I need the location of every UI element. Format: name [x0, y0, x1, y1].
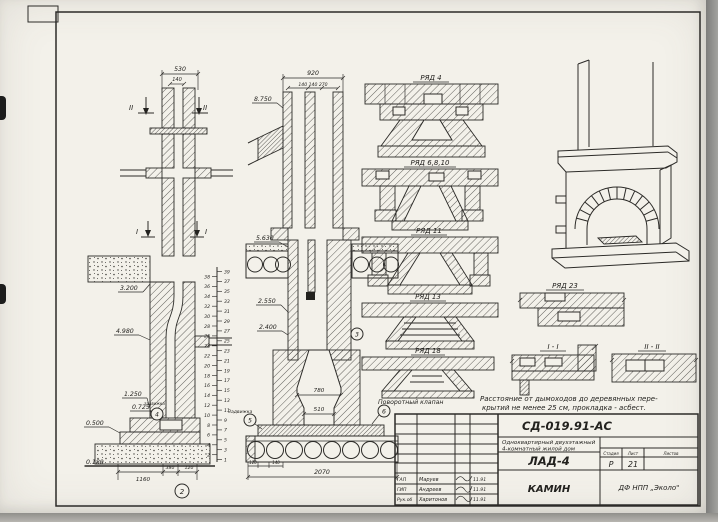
label-povorotny-klapan: Поворотный клапан — [378, 399, 443, 406]
course-number: 32 — [204, 304, 210, 310]
note-text: Расстояние от дымоходов до деревянных пе… — [480, 395, 658, 412]
label-zadvizhka: Задвижка — [228, 409, 253, 415]
dim-920: 920 — [307, 70, 319, 77]
course-number: 33 — [224, 299, 230, 305]
course-number: 19 — [224, 368, 230, 374]
course-number: 22 — [204, 354, 210, 360]
callout-4: 4 — [155, 412, 159, 419]
course-number: 3 — [224, 448, 227, 454]
dim-780: 780 — [314, 388, 325, 394]
level-3200: 3.200 — [120, 285, 138, 292]
course-number: 25 — [224, 339, 230, 345]
plan-title-r13: РЯД 13 — [415, 293, 441, 301]
sheet-header: Лист — [627, 451, 639, 456]
title-block: ГАП Маруев 11.91 ГИП Андреев 11.91 Рук.о… — [395, 414, 698, 505]
plan-row-13: РЯД 13 — [362, 293, 498, 349]
course-number: 23 — [224, 349, 230, 355]
dim-140: 140 — [172, 77, 182, 83]
course-number: 30 — [204, 314, 210, 320]
callout-3: 3 — [355, 332, 359, 339]
detail-section-II-II: II - II — [610, 343, 698, 382]
course-number: 34 — [204, 294, 210, 300]
course-number: 29 — [224, 319, 230, 325]
level-0500: 0.500 — [86, 420, 104, 427]
course-number: 28 — [204, 324, 210, 330]
section-mark-I-right: I — [205, 228, 207, 236]
course-number: 37 — [224, 279, 230, 285]
course-number: 10 — [204, 413, 210, 419]
dim-510: 510 — [314, 407, 325, 413]
left-chimney-section: 530 140 II II I I — [84, 66, 233, 498]
sign-name-2: Харитонов — [418, 497, 447, 503]
course-number: 15 — [224, 388, 230, 394]
vent-upper — [556, 196, 566, 203]
label-zadvizhka-small: задвижка — [144, 401, 165, 406]
course-number: 12 — [204, 403, 210, 409]
level-5630: 5.630 — [256, 235, 274, 242]
plan-row-4: РЯД 4 — [365, 74, 498, 157]
dim-380: 380 — [166, 465, 175, 471]
dim-1160: 1160 — [136, 477, 151, 483]
scanned-drawing-sheet: 530 140 II II I I — [0, 0, 718, 522]
sign-date-1: 11.91 — [473, 487, 486, 493]
left-bottom-dims: 1160 380 120 — [116, 464, 199, 483]
dim-120: 120 — [185, 465, 194, 471]
course-number: 7 — [224, 428, 227, 434]
plan-title-r4: РЯД 4 — [420, 74, 441, 82]
detail-section-I-I: I - I — [510, 343, 598, 395]
level-1250: 1.250 — [124, 391, 142, 398]
sign-role-2: Рук.об — [397, 497, 413, 503]
plan-row-6-8-10: РЯД 6,8,10 — [362, 159, 498, 230]
sheets-header: Листов — [663, 451, 680, 456]
mid-bottom-dims: 120 140 2070 — [246, 460, 399, 480]
plan-title-r11: РЯД 11 — [416, 227, 442, 235]
plan-title-r23: РЯД 23 — [552, 282, 578, 290]
stage-header: Стадия — [603, 451, 619, 456]
doc-code: СД-019.91-АС — [522, 419, 613, 433]
course-number: 38 — [204, 274, 210, 280]
sign-date-0: 11.91 — [473, 477, 486, 483]
course-number: 35 — [224, 289, 230, 295]
sign-name-0: Маруев — [419, 477, 439, 483]
sheet-code: ЛАД-4 — [527, 454, 569, 468]
section-mark-I-left: I — [136, 228, 138, 236]
callout-5: 5 — [248, 418, 252, 425]
course-number: 39 — [224, 269, 230, 275]
detail-title-I-I: I - I — [547, 343, 558, 351]
corner-stamp-box — [28, 6, 58, 22]
dim-140-140-270: 140 140 270 — [298, 82, 327, 88]
drawing-title: КАМИН — [528, 484, 571, 495]
plan-title-r6810: РЯД 6,8,10 — [410, 159, 450, 167]
course-number: 17 — [224, 378, 230, 384]
sheet-number: 21 — [628, 460, 638, 469]
signature-rows: ГАП Маруев 11.91 ГИП Андреев 11.91 Рук.о… — [397, 476, 486, 503]
plan-row-23: РЯД 23 — [518, 282, 626, 326]
org-name: ДФ НПП „Эколо" — [618, 484, 680, 492]
note-line-2: крытий не менее 25 см, прокладка - асбес… — [482, 404, 646, 412]
course-ladder: 3937353331292725232119171513119753138363… — [204, 267, 230, 463]
plan-row-18: РЯД 18 — [362, 347, 494, 398]
detail-title-II-II: II - II — [644, 343, 659, 351]
drawing: 530 140 II II I I — [0, 0, 718, 522]
level-0180: 0.180 — [86, 459, 104, 466]
plan-title-r18: РЯД 18 — [415, 347, 441, 355]
course-number: 14 — [204, 393, 210, 399]
level-2550: 2.550 — [258, 298, 276, 305]
course-number: 16 — [204, 383, 210, 389]
sign-role-0: ГАП — [397, 477, 407, 483]
course-number: 2 — [207, 453, 210, 459]
project-name-line2: 4-комнатный жилой дом — [502, 447, 576, 453]
note-line-1: Расстояние от дымоходов до деревянных пе… — [480, 395, 658, 403]
dim-140b: 140 — [272, 460, 280, 465]
dim-2070: 2070 — [314, 469, 330, 476]
course-number: 21 — [224, 358, 230, 364]
dim-120b: 120 — [249, 460, 257, 465]
course-number: 8 — [207, 423, 210, 429]
fireplace-pictorial-view — [552, 60, 689, 268]
callout-2: 2 — [180, 488, 185, 496]
course-number: 18 — [204, 373, 210, 379]
vent-lower — [556, 226, 566, 233]
course-number: 36 — [204, 284, 210, 290]
course-number: 26 — [204, 334, 210, 340]
level-2400: 2.400 — [259, 324, 277, 331]
course-number: 4 — [207, 443, 210, 449]
sign-role-1: ГИП — [397, 487, 407, 493]
section-mark-II-left: II — [129, 104, 133, 112]
course-number: 31 — [224, 309, 230, 315]
dim-530: 530 — [174, 66, 186, 73]
level-8750: 8.750 — [254, 96, 272, 103]
level-4980: 4.980 — [116, 328, 134, 335]
course-number: 24 — [204, 344, 210, 350]
course-number: 27 — [224, 329, 230, 335]
course-number: 6 — [207, 433, 210, 439]
callout-6: 6 — [382, 409, 386, 416]
course-number: 20 — [204, 363, 210, 369]
stage-value: Р — [609, 460, 614, 469]
course-number: 9 — [224, 418, 227, 424]
project-name-line1: Одноквартирный двухэтажный — [502, 440, 596, 446]
course-number: 1 — [224, 457, 227, 463]
plan-row-11: РЯД 11 — [362, 227, 498, 294]
sign-date-2: 11.91 — [473, 497, 486, 503]
section-mark-II-right: II — [203, 104, 207, 112]
sign-name-1: Андреев — [418, 487, 441, 493]
course-number: 13 — [224, 398, 230, 404]
course-number: 5 — [224, 438, 227, 444]
